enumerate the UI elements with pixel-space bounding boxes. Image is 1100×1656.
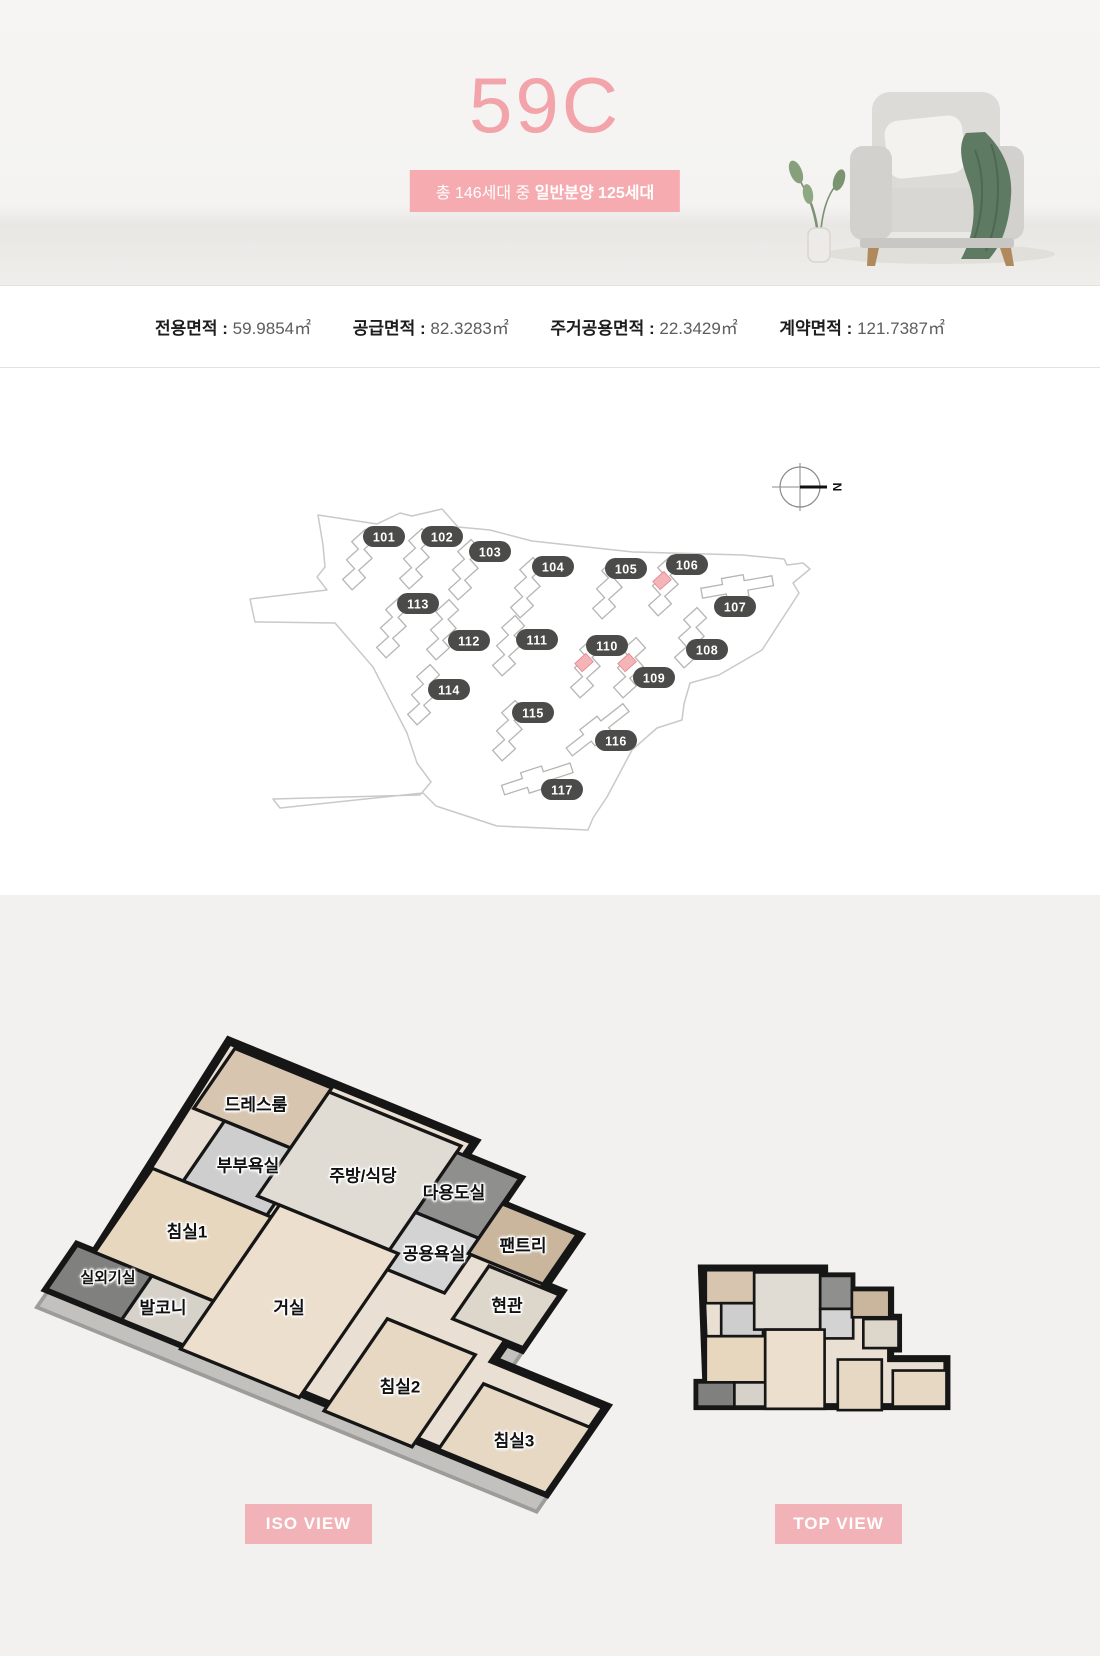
hero-section: 59C 총 146세대 중 일반분양 125세대 [0,0,1100,285]
building-104: 104 [496,556,574,618]
area-common-value: 22.3429㎡ [659,319,737,338]
area-exclusive: 전용면적 : 59.9854㎡ [155,314,311,339]
floor-plan-section: 드레스룸 부부욕실 주방/식당 다용도실 침실1 공용욕실 팬트리 실외기실 발… [0,895,1100,1656]
building-103: 103 [434,540,511,600]
room-label-utility: 다용도실 [423,1179,486,1204]
building-badge-111: 111 [527,634,548,648]
top-view-plan [697,1268,947,1410]
separator: : [842,319,857,338]
building-badge-106: 106 [676,559,698,573]
building-108: 108 [660,608,728,668]
armchair-illustration [850,92,1024,266]
building-badge-116: 116 [605,735,627,749]
top-view-button[interactable]: TOP VIEW [775,1504,902,1544]
building-badge-113: 113 [407,598,429,612]
building-badge-108: 108 [696,644,718,658]
room-label-bedroom1: 침실1 [167,1218,208,1243]
area-contract-label: 계약면적 [779,319,842,338]
building-badge-109: 109 [643,672,665,686]
area-info-bar: 전용면적 : 59.9854㎡ 공급면적 : 82.3283㎡ 주거공용면적 :… [0,285,1100,368]
supply-badge-bold: 일반분양 125세대 [535,185,654,202]
site-plan-map: N 10110210310410510610710810911011111211… [0,368,1100,895]
room-label-acroom: 실외기실 [80,1267,135,1288]
area-supply-label: 공급면적 [353,319,416,338]
room-label-commonbath: 공용욕실 [403,1240,466,1265]
building-116: 116 [562,699,637,761]
room-label-pantry: 팬트리 [500,1232,547,1257]
building-badge-101: 101 [373,531,395,545]
building-badge-107: 107 [724,601,746,615]
separator: : [218,319,233,338]
armchair-photo [780,0,1100,285]
building-115: 115 [478,701,554,761]
compass-north-label: N [830,483,844,492]
area-contract: 계약면적 : 121.7387㎡ [779,314,945,339]
plant-illustration [786,159,848,262]
supply-badge: 총 146세대 중 일반분양 125세대 [410,170,680,212]
building-badge-114: 114 [438,684,460,698]
room-label-balcony: 발코니 [140,1294,187,1319]
building-badge-104: 104 [542,561,564,575]
area-exclusive-value: 59.9854㎡ [233,319,311,338]
building-117: 117 [500,757,583,800]
area-supply: 공급면적 : 82.3283㎡ [353,314,509,339]
room-label-kitchen: 주방/식당 [329,1162,396,1187]
compass-icon: N [772,463,844,511]
room-label-living: 거실 [273,1294,304,1319]
building-105: 105 [578,558,647,619]
site-plan-section: N 10110210310410510610710810911011111211… [0,368,1100,895]
building-107: 107 [700,570,775,617]
separator: : [415,319,430,338]
building-badge-115: 115 [522,707,544,721]
room-label-entrance: 현관 [491,1292,522,1317]
building-114: 114 [393,665,470,725]
building-badge-102: 102 [431,531,453,545]
room-label-bedroom2: 침실2 [380,1373,421,1398]
iso-view-button[interactable]: ISO VIEW [245,1504,372,1544]
building-badge-110: 110 [596,640,618,654]
room-label-bedroom3: 침실3 [494,1427,535,1452]
area-exclusive-label: 전용면적 [155,319,218,338]
area-common-label: 주거공용면적 [550,319,644,338]
building-111: 111 [478,616,558,676]
room-label-dressroom: 드레스룸 [225,1091,288,1116]
area-common: 주거공용면적 : 22.3429㎡ [550,314,737,339]
building-badge-117: 117 [551,784,573,798]
building-badge-112: 112 [458,635,480,649]
building-badge-103: 103 [479,546,501,560]
building-101: 101 [328,526,405,590]
iso-view-plan [42,1037,719,1500]
area-contract-value: 121.7387㎡ [857,319,945,338]
area-supply-value: 82.3283㎡ [430,319,508,338]
floor-plan-drawings [0,895,1100,1656]
unit-type-title: 59C [469,60,621,151]
separator: : [644,319,659,338]
building-badge-105: 105 [615,563,637,577]
supply-badge-prefix: 총 146세대 중 [436,185,535,202]
room-label-masterbath: 부부욕실 [217,1152,280,1177]
